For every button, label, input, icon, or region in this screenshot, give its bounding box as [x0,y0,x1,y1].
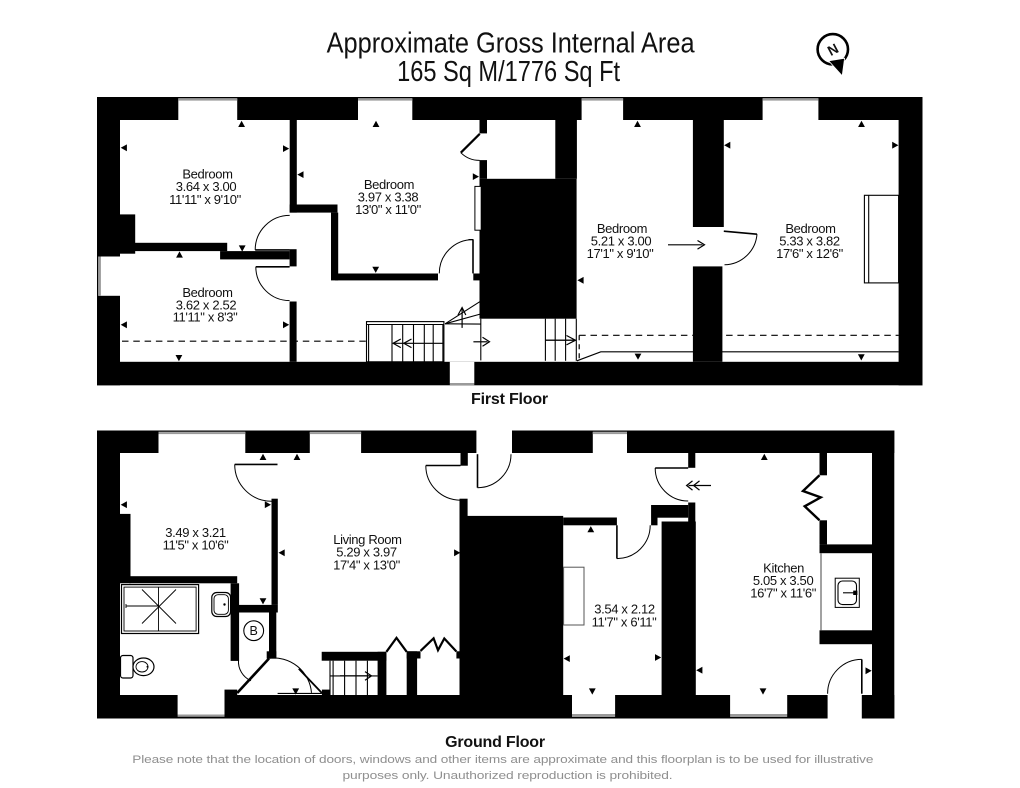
svg-text:165 Sq M/1776 Sq Ft: 165 Sq M/1776 Sq Ft [397,56,620,88]
svg-text:11'5" x 10'6": 11'5" x 10'6" [163,537,230,552]
svg-text:11'7" x 6'11": 11'7" x 6'11" [592,615,658,630]
svg-text:B: B [250,624,258,638]
svg-text:First Floor: First Floor [471,391,548,408]
svg-text:Please note that the location: Please note that the location of doors, … [132,754,873,766]
svg-text:Approximate Gross Internal Are: Approximate Gross Internal Area [327,28,695,60]
svg-text:16'7" x 11'6": 16'7" x 11'6" [750,586,817,601]
svg-text:Ground Floor: Ground Floor [445,734,545,751]
svg-text:13'0" x 11'0": 13'0" x 11'0" [355,202,422,217]
svg-text:17'1" x 9'10": 17'1" x 9'10" [587,246,654,261]
svg-text:11'11" x 9'10": 11'11" x 9'10" [169,192,241,207]
svg-text:17'6" x 12'6": 17'6" x 12'6" [776,246,843,261]
svg-text:11'11" x 8'3": 11'11" x 8'3" [173,310,239,325]
svg-text:17'4" x 13'0": 17'4" x 13'0" [333,557,400,572]
svg-text:purposes only. Unauthorized re: purposes only. Unauthorized reproduction… [343,770,673,782]
